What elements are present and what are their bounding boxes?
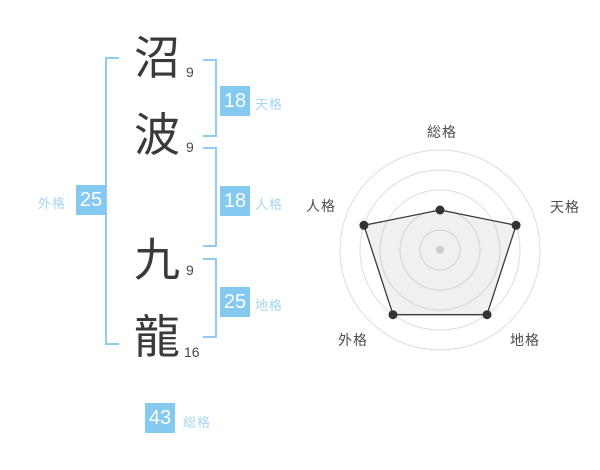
tenkaku-bracket [203,59,217,137]
tenkaku-badge: 18 [220,86,250,116]
radar-label-gaikaku: 外格 [338,330,368,350]
radar-data-point [436,206,445,215]
radar-label-tenkaku: 天格 [550,197,580,217]
radar-label-chikaku: 地格 [510,330,540,350]
jinkaku-badge: 18 [220,186,250,216]
radar-data-point [359,221,368,230]
jinkaku-label: 人格 [255,194,283,213]
name-char-1: 沼 [133,34,181,82]
stroke-count-3: 9 [186,262,194,278]
gaikaku-label: 外格 [38,193,66,212]
chikaku-bracket [203,258,217,338]
stroke-count-4: 16 [184,344,200,360]
radar-center-dot [436,246,444,254]
radar-data-point [483,310,492,319]
name-char-2: 波 [133,111,181,159]
radar-label-jinkaku: 人格 [306,196,336,216]
name-char-3: 九 [133,236,181,284]
radar-label-soukaku: 総格 [427,122,457,142]
seimei-handan-result: 外格 25 沼 波 九 龍 9 9 9 16 18 天格 18 人格 25 地格… [0,0,600,470]
soukaku-label: 総格 [183,412,211,431]
jinkaku-bracket [203,147,217,247]
radar-chart [330,140,550,360]
gaikaku-bracket [105,57,119,345]
radar-data-polygon [364,210,516,315]
chikaku-label: 地格 [255,295,283,314]
chikaku-badge: 25 [220,287,250,317]
radar-data-point [512,221,521,230]
stroke-count-2: 9 [186,139,194,155]
soukaku-badge: 43 [145,403,175,433]
tenkaku-label: 天格 [255,94,283,113]
radar-data-point [389,310,398,319]
name-char-4: 龍 [133,313,181,361]
stroke-count-1: 9 [186,64,194,80]
gaikaku-badge: 25 [76,185,106,215]
